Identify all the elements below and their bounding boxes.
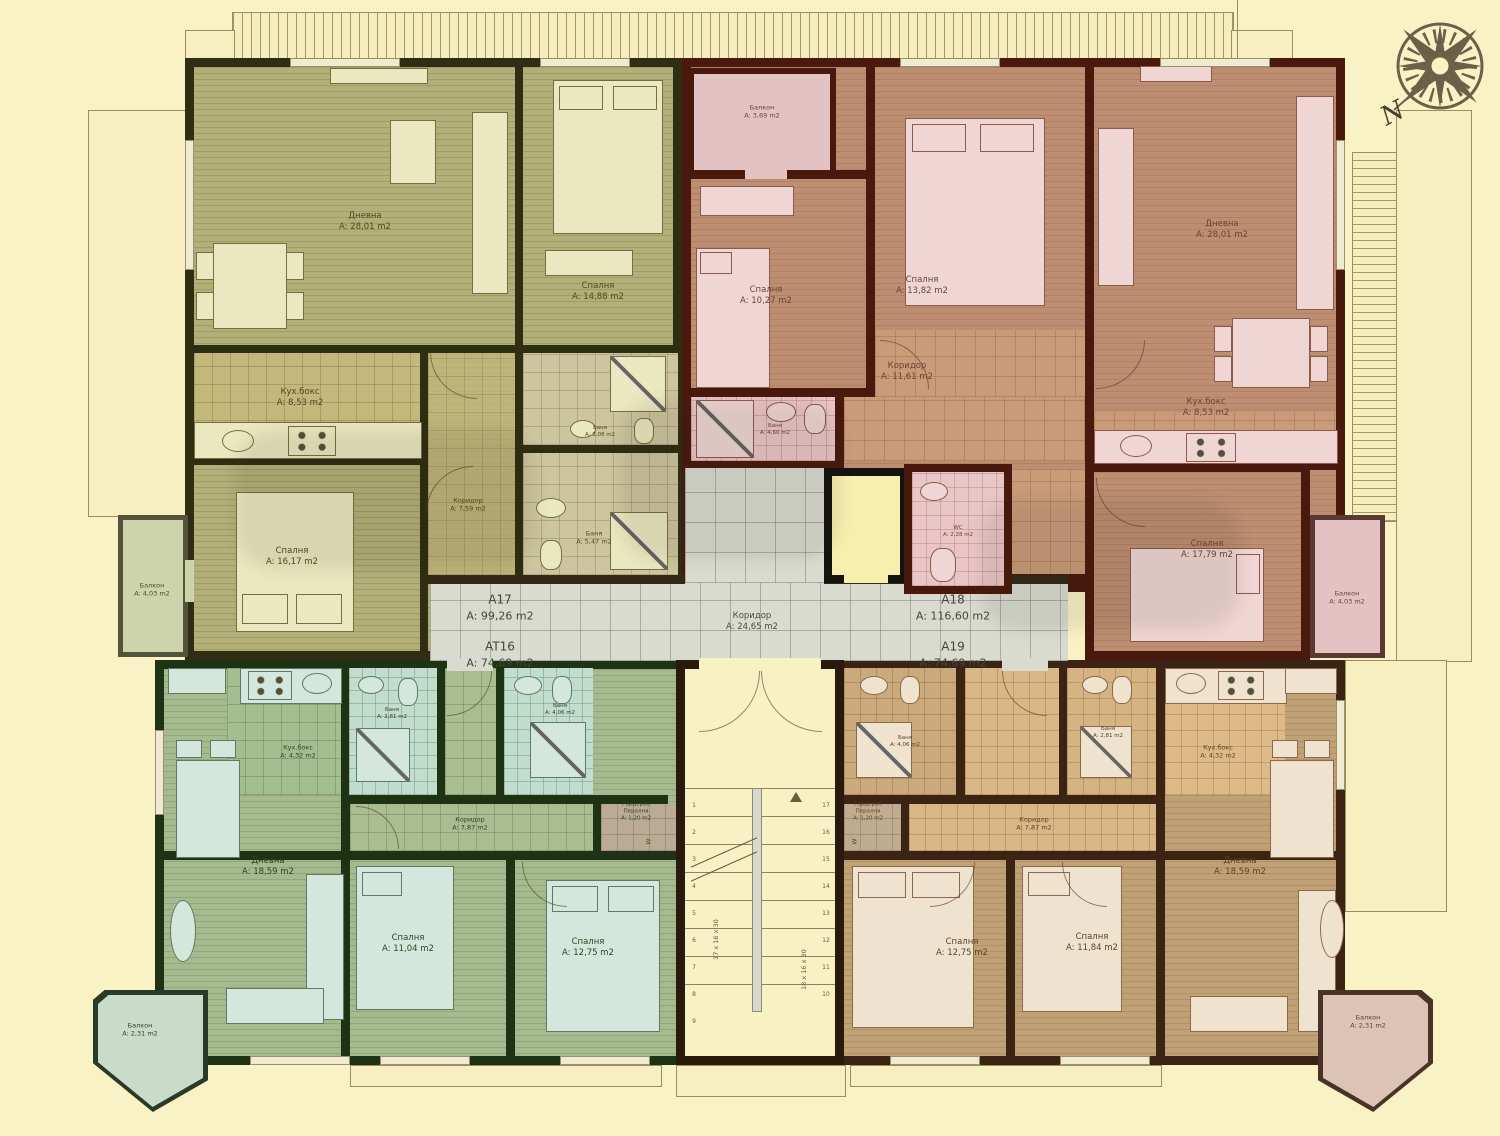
sink-icon — [1082, 676, 1108, 694]
wall-segment — [345, 795, 668, 804]
unit-label-a19: A19A: 74,69 m2 — [919, 638, 986, 671]
roof-side-right — [1396, 110, 1472, 662]
window — [1336, 140, 1345, 270]
tv-cabinet — [1140, 66, 1212, 82]
washer-mark: W — [645, 839, 652, 845]
pillow — [362, 872, 402, 896]
room-label: Кух.боксA: 4,32 m2 — [1200, 744, 1236, 761]
unit-label-at16: AT16A: 74,69 m2 — [466, 638, 533, 671]
dining-table — [176, 760, 240, 858]
toilet-icon — [398, 678, 418, 706]
a18-balcony-right — [1310, 515, 1385, 658]
room-label: СпалняA: 12,75 m2 — [936, 937, 988, 959]
window — [1336, 700, 1345, 790]
wall-segment — [1059, 668, 1067, 795]
wall-segment — [956, 668, 965, 795]
toilet-icon — [1112, 676, 1132, 704]
toilet-icon — [930, 548, 956, 582]
stair-flight1-dims: 17 x 16 x 30 — [712, 919, 720, 960]
pillow — [608, 886, 654, 912]
corridor-label: КоридорA: 24,65 m2 — [726, 611, 778, 633]
desk — [700, 186, 794, 216]
window — [380, 1056, 470, 1065]
wall-segment — [1156, 668, 1165, 1058]
dining-table — [213, 243, 287, 329]
room-label: СпалняA: 12,75 m2 — [562, 937, 614, 959]
washer-mark: W — [851, 839, 858, 845]
balcony-door-gap — [185, 560, 194, 602]
wall-segment — [844, 795, 1160, 804]
chair — [1310, 356, 1328, 382]
wall-segment — [496, 668, 504, 795]
balcony-door-gap — [745, 170, 787, 179]
room-label: БалконA: 4,03 m2 — [134, 582, 170, 599]
room-label: СпалняA: 10,27 m2 — [740, 285, 792, 307]
chair — [176, 740, 202, 758]
a18-balcony-top — [688, 68, 836, 176]
room-label: ДневнаA: 28,01 m2 — [339, 211, 391, 233]
bench — [545, 250, 633, 276]
stair-up-arrow — [790, 792, 802, 802]
stair-flight2-dims: 18 x 16 x 30 — [800, 949, 808, 990]
room-label: БаняA: 2,81 m2 — [377, 707, 407, 721]
pillow — [613, 86, 657, 110]
pillow — [242, 594, 288, 624]
chair — [1304, 740, 1330, 758]
armchair — [390, 120, 436, 184]
pillow — [912, 124, 966, 152]
chair — [1272, 740, 1298, 758]
sofa — [1190, 996, 1288, 1032]
wardrobe — [1098, 128, 1134, 286]
pillow — [980, 124, 1034, 152]
window — [540, 58, 630, 67]
window — [185, 140, 194, 270]
floor-lamp — [1320, 900, 1344, 958]
kitchen-counter — [1285, 668, 1337, 694]
dining-table — [1270, 760, 1334, 858]
stove-icon — [1186, 433, 1236, 462]
room-label: Кух.боксA: 8,53 m2 — [1183, 397, 1230, 419]
elevator-door — [844, 575, 888, 583]
pillow — [700, 252, 732, 274]
wall-segment — [437, 668, 445, 795]
room-label: БалконA: 2,31 m2 — [122, 1022, 158, 1039]
wall-segment — [866, 67, 875, 397]
wall-segment — [506, 855, 515, 1056]
chair — [196, 252, 214, 280]
chair — [1310, 326, 1328, 352]
room-label: Гардероб ПералняA: 1,20 m2 — [621, 801, 651, 822]
shower-icon — [356, 728, 410, 782]
sink-icon — [514, 676, 542, 695]
toilet-icon — [540, 540, 562, 570]
watermark — [980, 500, 1240, 630]
room-label: СпалняA: 11,04 m2 — [382, 933, 434, 955]
room-label: Кух.боксA: 4,32 m2 — [280, 744, 316, 761]
dining-table — [1232, 318, 1310, 388]
a18-hall-floor — [844, 397, 1085, 461]
stove-icon — [1218, 671, 1264, 700]
chair — [196, 292, 214, 320]
chair — [1214, 356, 1232, 382]
sofa — [472, 112, 508, 294]
sink-icon — [1120, 435, 1152, 457]
shower-icon — [530, 722, 586, 778]
roof-bay-bottom-left — [350, 1065, 662, 1087]
room-label: Кух.боксA: 8,53 m2 — [277, 387, 324, 409]
sink-icon — [1176, 673, 1206, 694]
stair-numbers-left: 1 2 3 4 5 6 7 8 9 — [692, 792, 696, 1035]
room-label: СпалняA: 13,82 m2 — [896, 275, 948, 297]
roof-step — [1231, 30, 1293, 60]
room-label: WCA: 2,28 m2 — [943, 525, 973, 539]
sink-icon — [358, 676, 384, 694]
chair — [210, 740, 236, 758]
window — [1060, 1056, 1150, 1065]
kitchen-counter — [168, 668, 226, 694]
tv-cabinet — [330, 68, 428, 84]
room-label: СпалняA: 11,84 m2 — [1066, 932, 1118, 954]
wall-segment — [901, 795, 909, 857]
entrance-stoop — [676, 1065, 846, 1097]
sink-icon — [302, 673, 332, 694]
room-label: БалконA: 2,31 m2 — [1350, 1014, 1386, 1031]
watermark — [620, 400, 840, 560]
watermark — [235, 430, 535, 570]
stairwell-door-gap — [699, 658, 821, 671]
room-label: БаняA: 4,06 m2 — [545, 703, 575, 717]
pillow — [559, 86, 603, 110]
roof-side-left — [88, 110, 187, 517]
window — [900, 58, 1000, 67]
floor-plan: 1 2 3 4 5 6 7 8 9 17 16 15 14 13 12 11 1… — [0, 0, 1500, 1136]
window — [250, 1056, 350, 1065]
room-label: БалконA: 3,69 m2 — [744, 104, 780, 121]
room-label: БаняA: 4,06 m2 — [890, 735, 920, 749]
unit-label-a17: A17A: 99,26 m2 — [466, 591, 533, 624]
room-label: КоридорA: 7,87 m2 — [1016, 816, 1052, 833]
sofa — [226, 988, 324, 1024]
sink-icon — [920, 482, 948, 501]
window — [560, 1056, 650, 1065]
toilet-icon — [552, 676, 572, 704]
sink-icon — [536, 498, 566, 518]
window — [890, 1056, 980, 1065]
window — [1160, 58, 1270, 67]
room-label: КоридорA: 11,61 m2 — [881, 361, 933, 383]
window — [155, 730, 164, 815]
wall-segment — [593, 795, 601, 857]
room-label: КоридорA: 7,87 m2 — [452, 816, 488, 833]
roof-eave-top — [232, 12, 1234, 60]
unit-label-a18: A18A: 116,60 m2 — [916, 591, 990, 624]
shower-icon — [856, 722, 912, 778]
stair-numbers-right: 17 16 15 14 13 12 11 10 — [822, 792, 830, 1008]
room-label: БаняA: 2,81 m2 — [1093, 726, 1123, 740]
roof-side-right-low — [1345, 660, 1447, 912]
room-label: ДневнаA: 18,59 m2 — [242, 856, 294, 878]
chair — [286, 252, 304, 280]
roof-bay-bottom-right — [850, 1065, 1162, 1087]
chair — [1214, 326, 1232, 352]
sink-icon — [860, 676, 888, 695]
a19-entry-gap — [1002, 658, 1048, 671]
room-label: Гардероб ПералняA: 1,20 m2 — [853, 801, 883, 822]
room-label: ДневнаA: 18,59 m2 — [1214, 856, 1266, 878]
floor-lamp — [170, 900, 196, 962]
pillow — [858, 872, 906, 898]
room-label: ДневнаA: 28,01 m2 — [1196, 219, 1248, 241]
roof-step — [185, 30, 235, 60]
stair-stringer — [752, 788, 762, 1012]
room-label: БалконA: 4,03 m2 — [1329, 590, 1365, 607]
room-label: СпалняA: 14,88 m2 — [572, 281, 624, 303]
window — [290, 58, 400, 67]
wall-segment — [430, 575, 685, 584]
room-label: БаняA: 5,47 m2 — [576, 530, 612, 547]
wall-segment — [1085, 67, 1094, 497]
chair — [286, 292, 304, 320]
compass-rose: N — [1378, 8, 1498, 128]
pillow — [296, 594, 342, 624]
stove-icon — [248, 671, 292, 700]
toilet-icon — [900, 676, 920, 704]
roof-eave-right — [1352, 152, 1398, 522]
room-label: БаняA: 3,08 m2 — [585, 425, 615, 439]
wall-segment — [1006, 855, 1015, 1056]
sofa — [1296, 96, 1334, 310]
